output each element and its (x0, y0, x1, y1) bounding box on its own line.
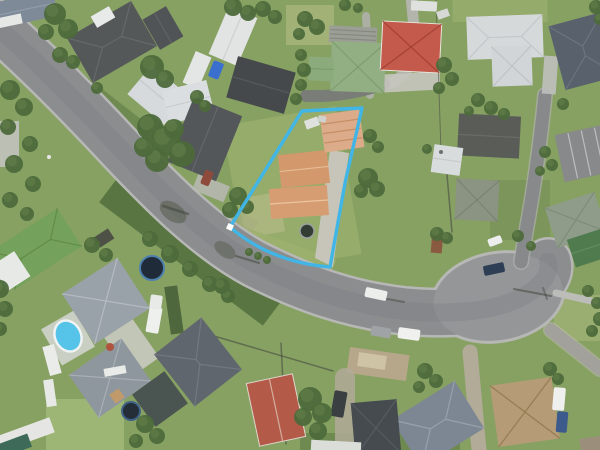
house-roof-green (330, 41, 386, 93)
tree (484, 101, 498, 115)
tree (52, 47, 68, 63)
parcel-house-roof (278, 150, 330, 188)
tree (294, 408, 312, 426)
tree (136, 415, 154, 433)
power-pole (439, 150, 443, 154)
tree (471, 93, 485, 107)
roof-strip (411, 0, 437, 11)
tree (20, 207, 34, 221)
tree (84, 237, 100, 253)
garage-roof (308, 57, 334, 82)
pond (300, 224, 314, 238)
tree (156, 70, 174, 88)
tree (369, 181, 385, 197)
tree (5, 155, 23, 173)
tree (512, 230, 524, 242)
tree (354, 184, 368, 198)
tree (22, 136, 38, 152)
truck (149, 294, 163, 310)
tree (539, 146, 551, 158)
trampoline (140, 256, 164, 280)
tree (169, 141, 195, 167)
tree (293, 28, 305, 40)
concrete-pad (542, 56, 559, 95)
tree (498, 108, 510, 120)
tree (312, 403, 332, 423)
tree (413, 381, 425, 393)
tree (363, 129, 377, 143)
tree (0, 80, 20, 100)
tree (464, 106, 474, 116)
house-roof (457, 113, 521, 158)
tree (91, 82, 103, 94)
aerial-map-viewport (0, 0, 600, 450)
tree (214, 278, 230, 294)
parcel-house-roof (269, 185, 329, 219)
car (552, 387, 566, 411)
tree (582, 285, 594, 297)
house-roof (454, 178, 499, 221)
tree (263, 256, 271, 264)
tree (199, 100, 211, 112)
house-roof-red (380, 21, 441, 73)
tree (25, 176, 41, 192)
house-roof (491, 45, 532, 86)
tree (129, 434, 143, 448)
tree (134, 137, 154, 157)
tree (164, 119, 184, 139)
tree (441, 232, 453, 244)
tree (445, 72, 459, 86)
tree (38, 24, 54, 40)
tree (268, 10, 282, 24)
tree (353, 3, 363, 13)
tree (297, 63, 311, 77)
tree (99, 248, 113, 262)
tree (245, 248, 253, 256)
tree (254, 252, 262, 260)
tree (429, 374, 443, 388)
tree (149, 428, 165, 444)
tree (161, 245, 179, 263)
tree (240, 5, 256, 21)
tree (182, 261, 198, 277)
tree (372, 141, 384, 153)
tree (422, 144, 432, 154)
tree (535, 166, 545, 176)
tree (295, 79, 307, 91)
tree (546, 159, 558, 171)
tree (142, 231, 158, 247)
tree (0, 119, 16, 135)
house-roof-tan (490, 377, 560, 447)
tree (15, 98, 33, 116)
tree (433, 82, 445, 94)
tree (526, 241, 536, 251)
tree (309, 422, 327, 440)
house-roof (431, 144, 464, 176)
tree (552, 373, 564, 385)
spa (122, 402, 140, 420)
tree (557, 98, 569, 110)
aerial-map[interactable] (0, 0, 600, 450)
tree (58, 19, 78, 39)
tree (2, 192, 18, 208)
tree (309, 19, 325, 35)
tree (295, 49, 307, 61)
car (556, 411, 569, 433)
post (47, 155, 51, 159)
garden-item (106, 343, 114, 351)
concrete-apron (384, 72, 441, 93)
tree (66, 55, 80, 69)
tree (586, 325, 598, 337)
tree (290, 93, 302, 105)
tree (436, 57, 452, 73)
